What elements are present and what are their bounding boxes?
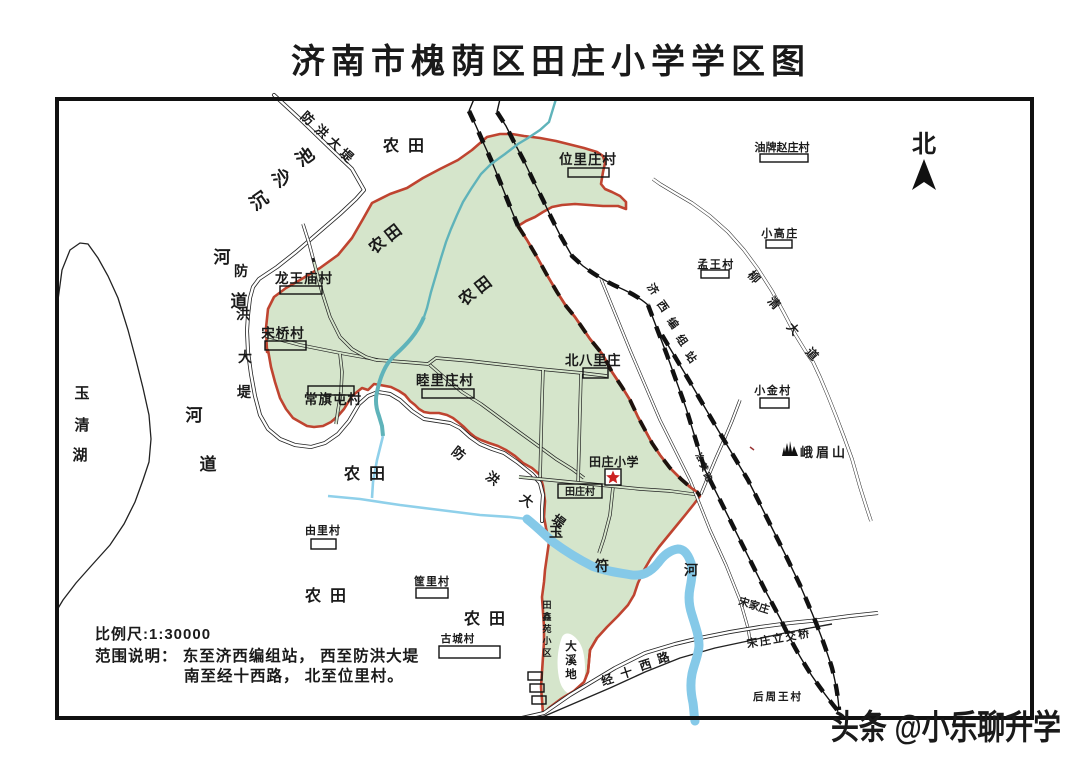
svg-text:田庄村: 田庄村: [565, 485, 595, 498]
svg-text:堤: 堤: [237, 384, 252, 400]
svg-text:宋桥村: 宋桥村: [261, 325, 305, 341]
svg-text:油牌赵庄村: 油牌赵庄村: [755, 140, 810, 154]
svg-text:古城村: 古城村: [441, 632, 476, 645]
svg-text:北八里庄: 北八里庄: [565, 352, 621, 368]
svg-text:湖: 湖: [72, 447, 87, 464]
svg-text:玉: 玉: [549, 524, 563, 540]
svg-text:睦里庄村: 睦里庄村: [416, 372, 474, 388]
svg-text:范围说明： 东至济西编组站， 西至防洪大堤: 范围说明： 东至济西编组站， 西至防洪大堤: [95, 646, 419, 665]
svg-text:符: 符: [594, 558, 609, 574]
svg-text:农田: 农田: [304, 586, 355, 605]
svg-text:洪: 洪: [236, 306, 250, 322]
svg-text:大: 大: [565, 639, 577, 653]
svg-text:筐里村: 筐里村: [414, 574, 450, 588]
svg-text:鑫: 鑫: [541, 611, 551, 622]
svg-text:溪: 溪: [565, 653, 577, 667]
svg-text:位里庄村: 位里庄村: [559, 151, 617, 167]
svg-text:龙王庙村: 龙王庙村: [274, 270, 333, 286]
svg-text:清: 清: [74, 416, 89, 434]
svg-text:头条 @小乐聊升学: 头条 @小乐聊升学: [831, 708, 1061, 746]
svg-text:区: 区: [542, 648, 551, 658]
svg-text:小金村: 小金村: [753, 383, 792, 397]
svg-text:地: 地: [565, 667, 577, 681]
svg-text:后周王村: 后周王村: [753, 690, 803, 703]
svg-text:小高庄: 小高庄: [760, 226, 799, 240]
svg-text:农田: 农田: [382, 136, 433, 155]
svg-text:田庄小学: 田庄小学: [589, 454, 639, 469]
svg-text:峨眉山: 峨眉山: [800, 445, 848, 460]
svg-text:防: 防: [234, 263, 248, 279]
svg-text:农田: 农田: [343, 464, 394, 483]
svg-text:小: 小: [541, 635, 551, 646]
svg-text:大: 大: [238, 349, 252, 365]
svg-text:河: 河: [214, 248, 231, 267]
svg-text:农田: 农田: [463, 609, 514, 628]
svg-text:田: 田: [542, 600, 551, 610]
svg-text:济南市槐荫区田庄小学学区图: 济南市槐荫区田庄小学学区图: [291, 42, 811, 81]
svg-text:北: 北: [912, 131, 936, 158]
svg-text:比例尺:1:30000: 比例尺:1:30000: [95, 625, 211, 643]
svg-text:玉: 玉: [74, 385, 89, 402]
svg-text:河: 河: [186, 406, 203, 425]
svg-text:河: 河: [684, 562, 698, 578]
svg-text:常旗屯村: 常旗屯村: [304, 391, 362, 407]
svg-text:苑: 苑: [542, 623, 551, 634]
svg-text:由里村: 由里村: [305, 523, 341, 537]
svg-text:孟王村: 孟王村: [697, 257, 735, 271]
svg-text:道: 道: [200, 454, 217, 474]
svg-text:南至经十西路， 北至位里村。: 南至经十西路， 北至位里村。: [184, 666, 404, 685]
